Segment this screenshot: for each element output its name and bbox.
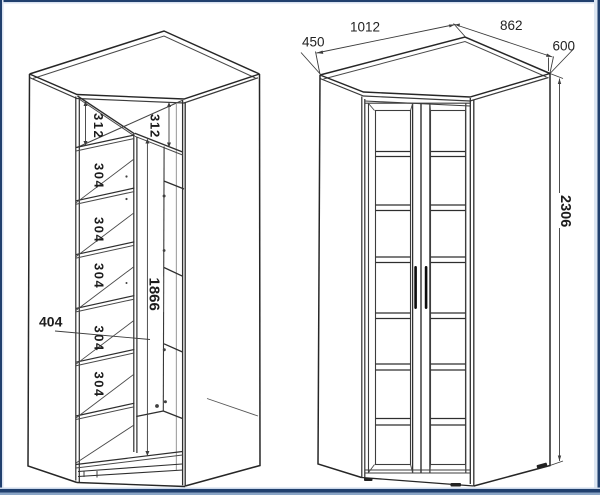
svg-text:304: 304 [92,217,107,243]
svg-text:1866: 1866 [146,278,163,311]
svg-text:304: 304 [92,163,107,189]
svg-text:312: 312 [147,114,162,138]
svg-text:304: 304 [92,372,107,398]
svg-text:862: 862 [500,18,523,33]
svg-text:600: 600 [553,39,576,54]
svg-text:450: 450 [302,35,325,50]
svg-text:304: 304 [92,263,107,289]
svg-text:2306: 2306 [557,195,573,227]
svg-text:404: 404 [39,314,63,330]
svg-text:312: 312 [91,113,106,139]
svg-text:1012: 1012 [350,20,380,35]
svg-text:304: 304 [92,326,107,352]
